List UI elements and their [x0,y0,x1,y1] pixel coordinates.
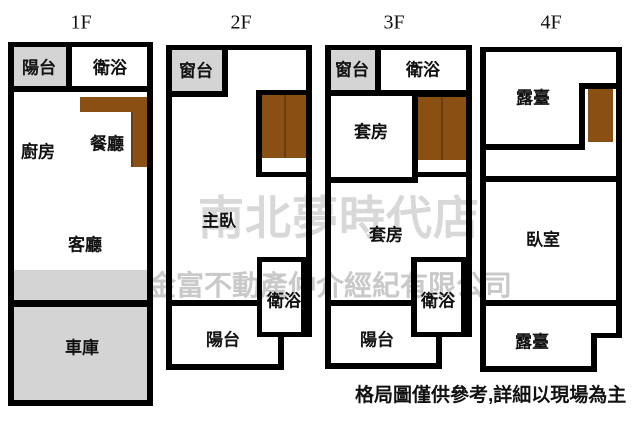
wall-segment [412,92,472,97]
wall-segment [412,172,472,177]
cabinet-counter [131,97,147,167]
wall-segment [480,47,622,52]
wall-segment [147,42,153,406]
wall-segment [325,363,442,369]
wall-segment [375,45,381,96]
wall-segment [616,47,622,338]
wall-segment [411,332,467,337]
wall-segment [480,176,622,182]
wall-segment [461,257,467,337]
cabinet-seam [131,112,133,167]
wall-segment [166,364,284,370]
room-label-garage: 車庫 [65,334,99,359]
room-label-bedroom: 臥室 [526,226,560,251]
wall-segment [480,366,597,372]
wall-segment [436,332,442,369]
wall-segment [222,45,228,97]
room-label-suite: 套房 [369,221,403,246]
wardrobe-cabinet [588,86,613,142]
floor-title: 1F [70,12,91,35]
room-label-window-sill: 窗台 [335,56,369,81]
room-label-balcony: 陽台 [360,326,394,351]
wall-segment [8,400,153,406]
room-label-roof-terrace: 露臺 [515,328,549,353]
room-label-bathroom: 衛浴 [406,56,440,81]
wall-segment [412,92,418,177]
disclaimer-note: 格局圖僅供參考,詳細以現場為主 [355,380,626,407]
room-label-kitchen: 廚房 [21,138,55,163]
stair-band-fill [14,270,147,300]
wall-segment [485,144,585,150]
room-label-bathroom: 衛浴 [93,54,127,79]
floor-title: 2F [230,12,251,35]
wall-segment [325,177,418,183]
room-label-balcony: 陽台 [22,54,56,79]
room-label-living: 客廳 [68,231,102,256]
wall-segment [166,45,312,50]
wall-segment [325,45,472,50]
room-label-master-bedroom: 主臥 [202,207,236,232]
wall-segment [166,300,262,306]
room-label-suite: 套房 [354,118,388,143]
floor-title: 4F [540,12,561,35]
wall-segment [411,257,467,262]
cabinet-seam [441,97,443,160]
room-label-balcony: 陽台 [206,326,240,351]
wall-segment [480,47,486,372]
wall-segment [8,300,153,307]
wall-segment [8,86,153,92]
wall-segment [256,172,312,177]
wall-segment [8,42,14,406]
room-label-window-sill: 窗台 [179,57,213,82]
room-label-dining: 餐廳 [90,130,124,155]
room-label-roof-terrace: 露臺 [516,84,550,109]
watermark-store-name: 南北夢時代店 [198,182,480,248]
cabinet-seam [284,95,286,158]
wall-segment [256,90,262,177]
floor-title: 3F [383,12,404,35]
wall-segment [306,45,312,337]
wall-segment [166,91,228,97]
wall-segment [278,332,284,370]
wall-segment [256,90,312,95]
wall-segment [66,42,72,92]
wall-segment [579,83,622,89]
wall-segment [301,257,306,337]
wall-segment [579,83,585,150]
wall-segment [257,257,262,337]
room-label-bathroom: 衛浴 [267,287,301,312]
wall-segment [480,300,622,306]
room-label-bathroom: 衛浴 [421,287,455,312]
floor-plan-canvas: 1F 陽台 衛浴 廚房 餐廳 客廳 車庫 2F [0,0,640,432]
wall-segment [325,300,417,306]
wall-segment [8,42,153,47]
wall-segment [411,257,417,337]
